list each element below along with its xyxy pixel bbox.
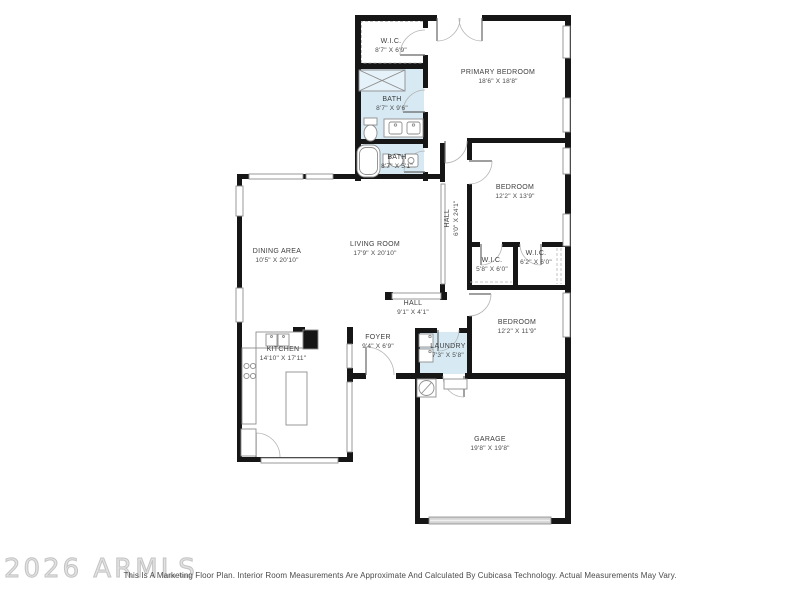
wet-room-fills bbox=[360, 69, 467, 374]
floor-plan-drawing bbox=[0, 0, 800, 600]
fridge-icon bbox=[303, 330, 318, 349]
toilet-icon bbox=[383, 154, 403, 167]
pantry-icon bbox=[241, 429, 256, 456]
water-heater-icon bbox=[417, 379, 436, 397]
bathtub-icon bbox=[357, 145, 380, 177]
floor-plan-page: W.I.C. 8'7" X 6'9" PRIMARY BEDROOM 18'6"… bbox=[0, 0, 800, 600]
kitchen-island-icon bbox=[286, 372, 307, 425]
fixtures bbox=[241, 70, 467, 456]
sink-icon bbox=[404, 154, 418, 167]
kitchen-counter-icon bbox=[256, 332, 303, 348]
double-vanity-icon bbox=[384, 119, 423, 137]
garage-step-icon bbox=[444, 379, 467, 389]
stove-icon bbox=[242, 348, 256, 424]
disclaimer-text: This Is A Marketing Floor Plan. Interior… bbox=[0, 571, 800, 580]
toilet-icon bbox=[364, 118, 377, 141]
garage-door-icon bbox=[429, 517, 551, 524]
shower-icon bbox=[359, 70, 405, 91]
